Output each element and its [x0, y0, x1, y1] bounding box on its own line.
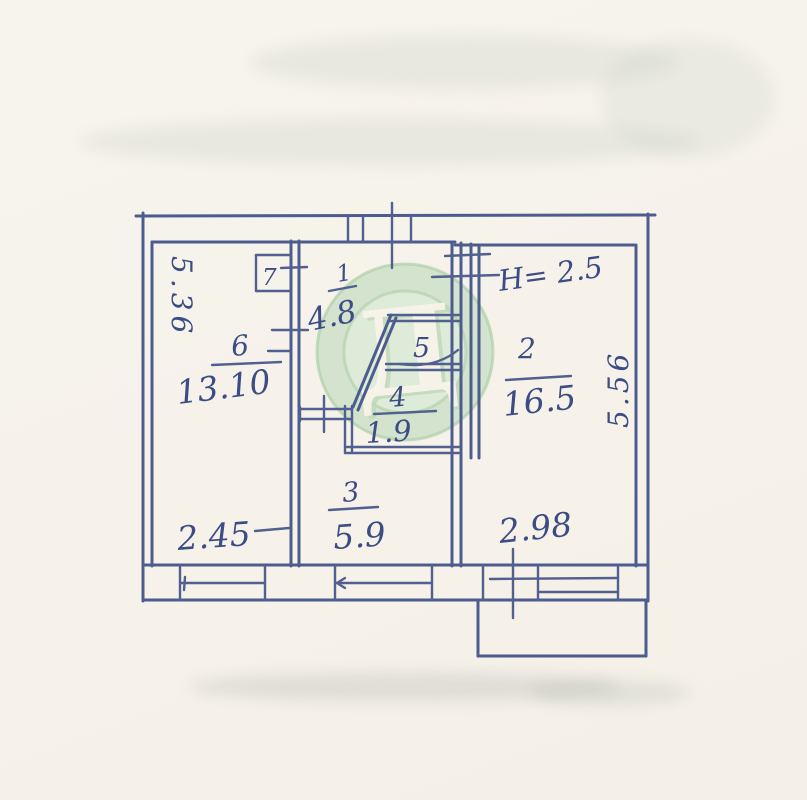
- scanned-floor-plan-page: Д Д: [0, 0, 807, 800]
- balcony-outline: [478, 601, 646, 656]
- kitchen-fraction-line: [329, 507, 378, 510]
- kitchen-area: 5.9: [332, 514, 387, 557]
- room6-depth-dimension: 5.36: [165, 256, 198, 338]
- room2-width-dimension: 2.98: [496, 504, 574, 551]
- room2-depth-dimension: 5.56: [602, 350, 635, 428]
- ceiling-height-note: Н= 2.5: [495, 250, 605, 298]
- room2-number: 2: [517, 332, 536, 365]
- partition-room6: [291, 241, 299, 566]
- hall-number: 1: [335, 260, 354, 288]
- balcony-door-window-unit: [483, 549, 618, 618]
- bath-area: 1.9: [365, 414, 413, 450]
- top-wall-niche: [348, 203, 411, 268]
- window-room6: [180, 565, 265, 600]
- room6-number: 6: [230, 329, 251, 363]
- closet7-number: 7: [262, 265, 277, 291]
- room6-width-leader: [255, 528, 289, 531]
- closet5-number: 5: [413, 333, 430, 364]
- kitchen-number: 3: [341, 477, 361, 509]
- room6-area: 13.10: [174, 362, 273, 412]
- window-kitchen: [335, 565, 432, 600]
- floor-plan-drawing: Д Д: [0, 0, 807, 800]
- room2-area: 16.5: [501, 377, 578, 423]
- bath-number: 4: [387, 382, 408, 414]
- room6-width-dimension: 2.45: [175, 514, 252, 558]
